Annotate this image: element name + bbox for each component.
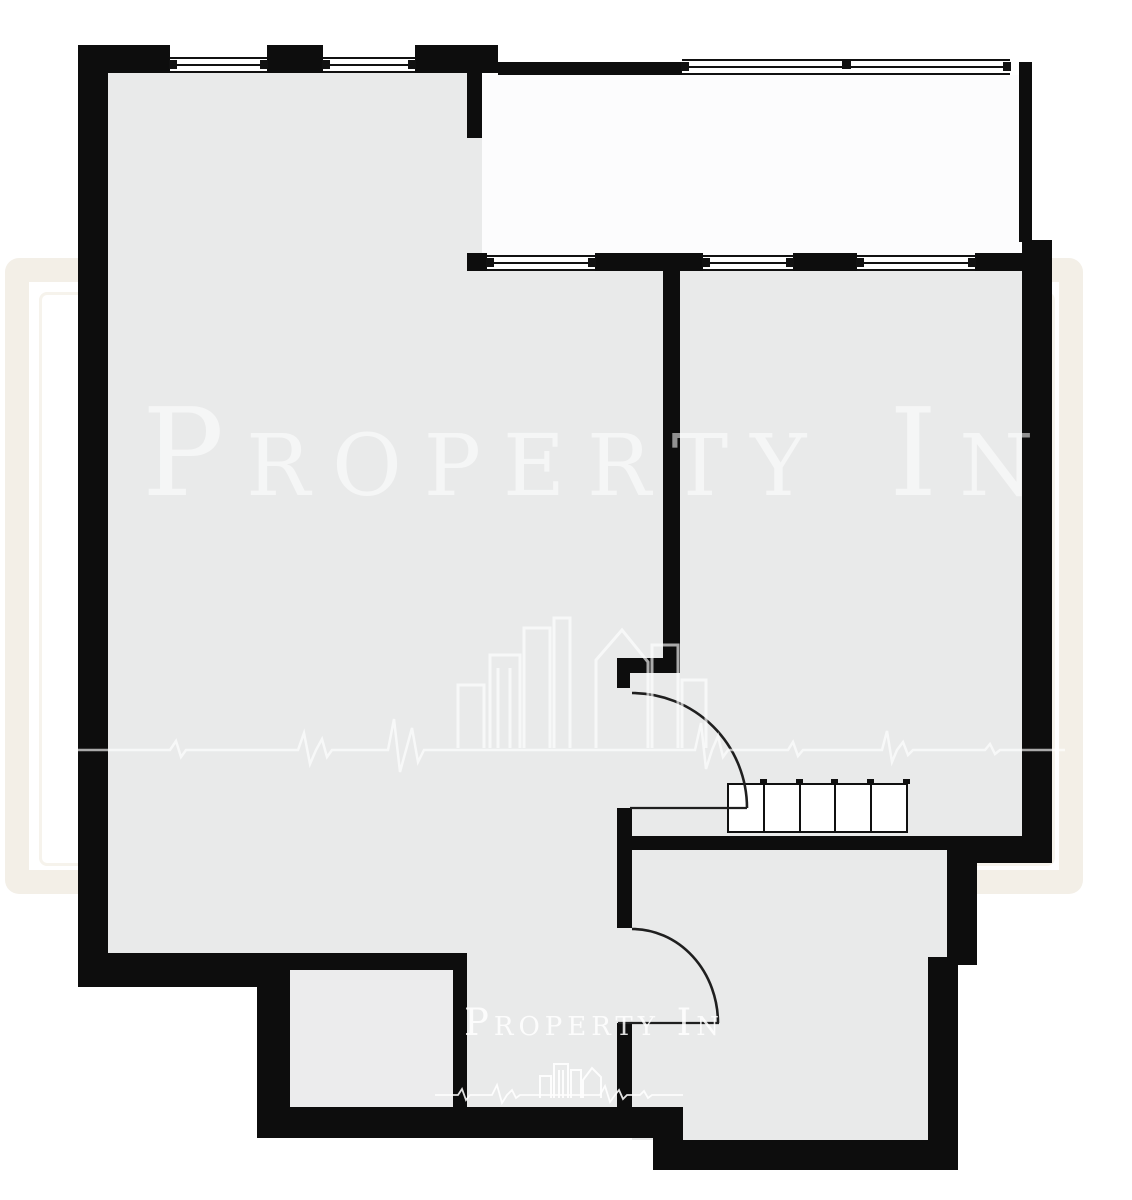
wall-balcony-left-stub xyxy=(467,73,482,138)
wall-mid-upper xyxy=(617,808,632,928)
window-balcony-long xyxy=(682,59,1010,75)
wall-top-c xyxy=(415,45,498,73)
wall-closet-top xyxy=(257,953,467,970)
wall-bottom-right xyxy=(653,1140,958,1170)
wall-band-c xyxy=(793,253,857,271)
wardrobe-cell xyxy=(763,783,801,833)
wall-mid-lower-stub xyxy=(617,1023,632,1138)
balcony-floor xyxy=(482,75,1020,255)
window-mullion-icon xyxy=(842,61,851,69)
wardrobe-cell xyxy=(799,783,837,833)
wall-band-d xyxy=(975,253,1022,271)
window-cap-icon xyxy=(681,62,689,71)
wall-right-lower-b xyxy=(928,957,958,1170)
wall-band-a xyxy=(467,253,487,271)
room-living-upper-floor xyxy=(108,73,482,258)
window-cap-icon xyxy=(1003,62,1011,71)
window-top-2 xyxy=(323,57,415,73)
wall-top-a xyxy=(78,45,170,73)
wardrobe-cell xyxy=(834,783,872,833)
window-cap-icon xyxy=(486,258,494,267)
wall-closet-left xyxy=(257,953,290,1138)
window-band-1 xyxy=(487,255,595,271)
wardrobe xyxy=(727,783,908,833)
window-band-3 xyxy=(857,255,975,271)
wall-top-b xyxy=(267,45,323,73)
wall-hook-bar xyxy=(617,658,680,673)
wall-corner-se xyxy=(977,836,1050,863)
floor-plan: Property In Property In xyxy=(0,0,1132,1200)
window-cap-icon xyxy=(856,258,864,267)
wall-interior-divider xyxy=(663,270,680,660)
wardrobe-cell xyxy=(727,783,765,833)
wall-right-upper xyxy=(1022,240,1052,863)
window-cap-icon xyxy=(588,258,596,267)
wall-balcony-right xyxy=(1019,62,1032,242)
wall-right-lower-a xyxy=(947,850,977,965)
room-living-main-floor xyxy=(108,258,663,953)
room-entrance-floor xyxy=(632,850,947,1140)
door-nook-floor xyxy=(632,658,680,836)
wall-hook-stub xyxy=(617,673,630,688)
closet-floor xyxy=(290,970,453,1107)
window-cap-icon xyxy=(169,60,177,69)
wall-balcony-top xyxy=(498,62,682,75)
window-band-2 xyxy=(703,255,793,271)
window-cap-icon xyxy=(260,60,268,69)
wall-left xyxy=(78,45,108,987)
window-top-1 xyxy=(170,57,267,73)
wall-band-b xyxy=(595,253,703,271)
window-cap-icon xyxy=(968,258,976,267)
wall-closet-right xyxy=(453,953,467,1138)
room-bedroom-floor xyxy=(680,270,1022,836)
window-cap-icon xyxy=(322,60,330,69)
wardrobe-cell xyxy=(870,783,908,833)
window-cap-icon xyxy=(786,258,794,267)
window-cap-icon xyxy=(702,258,710,267)
window-cap-icon xyxy=(408,60,416,69)
